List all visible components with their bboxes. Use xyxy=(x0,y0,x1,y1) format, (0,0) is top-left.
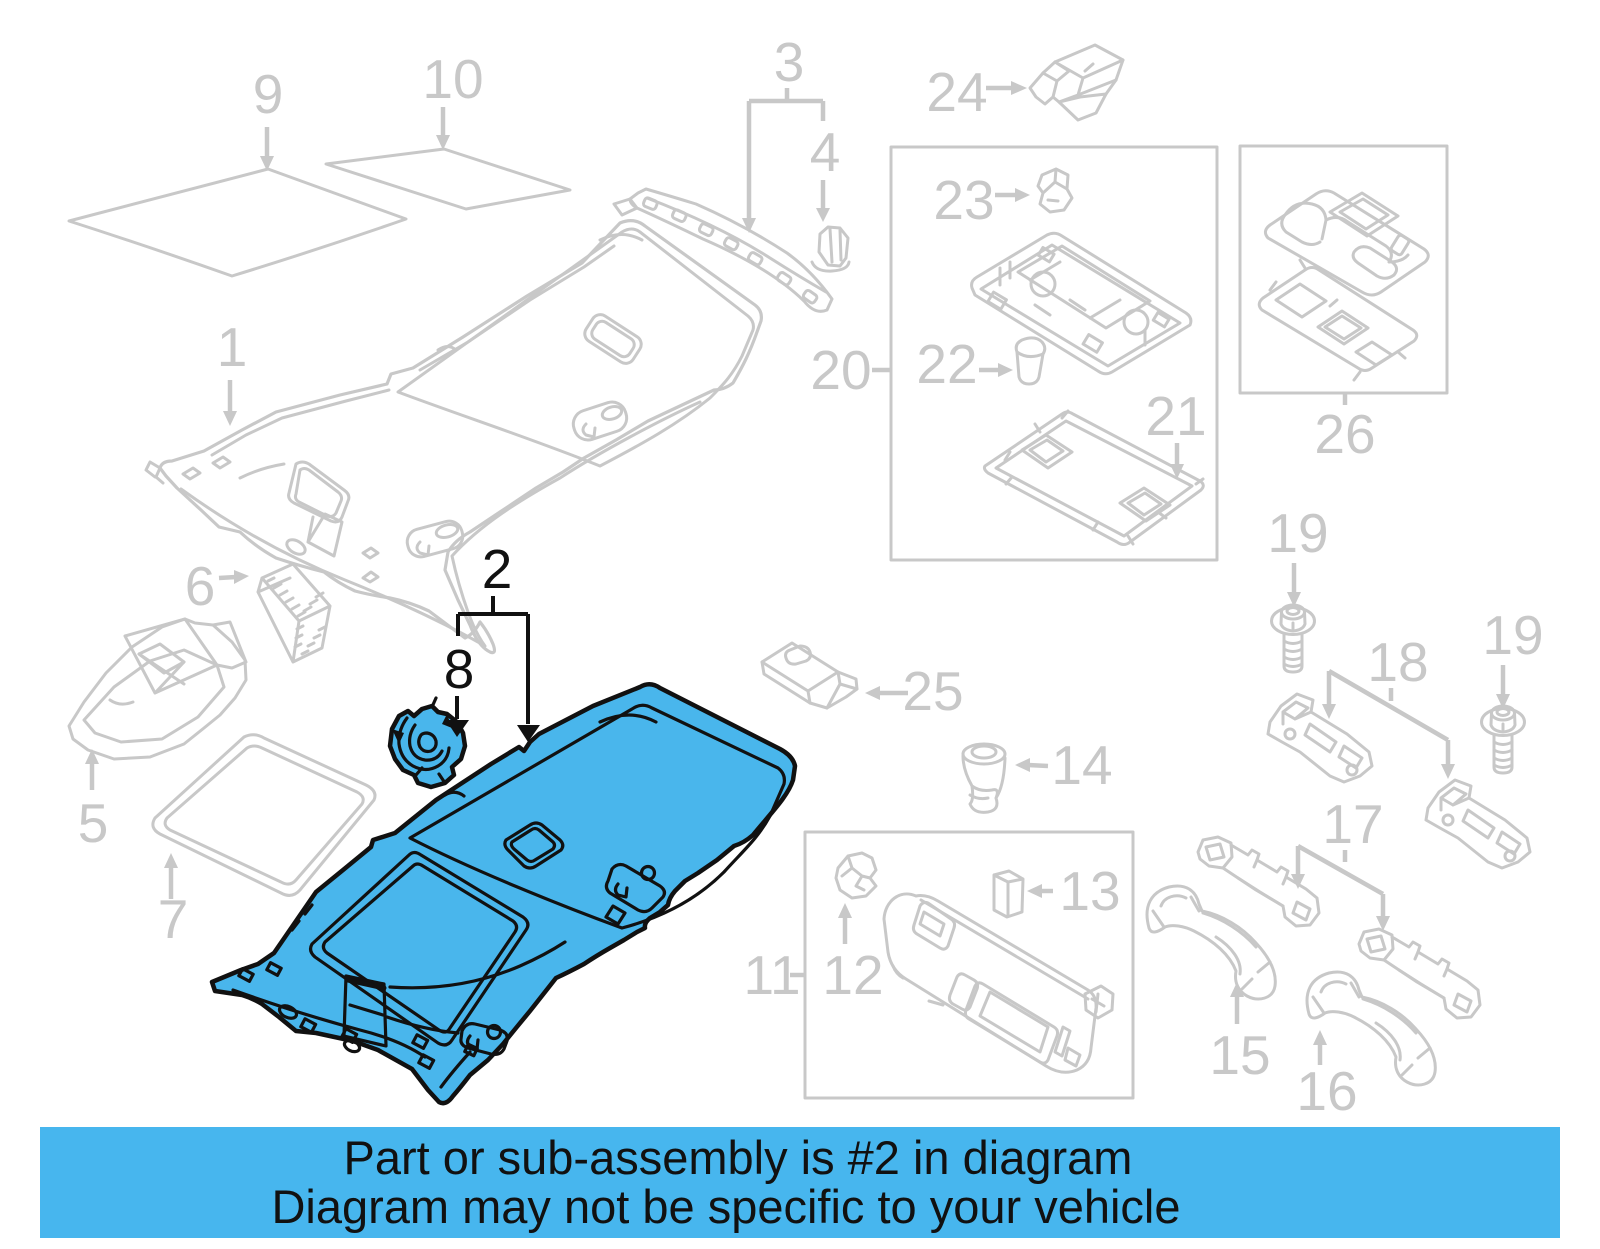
svg-text:12: 12 xyxy=(822,944,883,1006)
svg-text:5: 5 xyxy=(78,792,109,854)
svg-text:2: 2 xyxy=(482,538,513,600)
svg-text:22: 22 xyxy=(916,333,977,395)
svg-text:17: 17 xyxy=(1322,793,1383,855)
svg-text:16: 16 xyxy=(1296,1060,1357,1122)
svg-text:23: 23 xyxy=(933,169,994,231)
svg-text:10: 10 xyxy=(422,48,483,110)
svg-text:3: 3 xyxy=(774,31,805,93)
svg-text:20: 20 xyxy=(810,339,871,401)
svg-text:8: 8 xyxy=(444,638,475,700)
svg-text:24: 24 xyxy=(926,61,987,123)
svg-text:Part or sub-assembly is #2 in: Part or sub-assembly is #2 in diagram xyxy=(344,1131,1133,1184)
svg-text:9: 9 xyxy=(253,63,284,125)
svg-text:15: 15 xyxy=(1209,1024,1270,1086)
svg-text:25: 25 xyxy=(902,660,963,722)
svg-text:1: 1 xyxy=(217,316,248,378)
svg-text:19: 19 xyxy=(1482,604,1543,666)
svg-text:26: 26 xyxy=(1314,403,1375,465)
svg-text:19: 19 xyxy=(1267,502,1328,564)
svg-text:6: 6 xyxy=(185,555,216,617)
svg-text:21: 21 xyxy=(1145,385,1206,447)
svg-text:18: 18 xyxy=(1367,631,1428,693)
svg-text:Diagram may not be specific to: Diagram may not be specific to your vehi… xyxy=(271,1180,1180,1233)
svg-text:13: 13 xyxy=(1059,860,1120,922)
svg-text:4: 4 xyxy=(810,121,841,183)
svg-text:14: 14 xyxy=(1051,734,1112,796)
